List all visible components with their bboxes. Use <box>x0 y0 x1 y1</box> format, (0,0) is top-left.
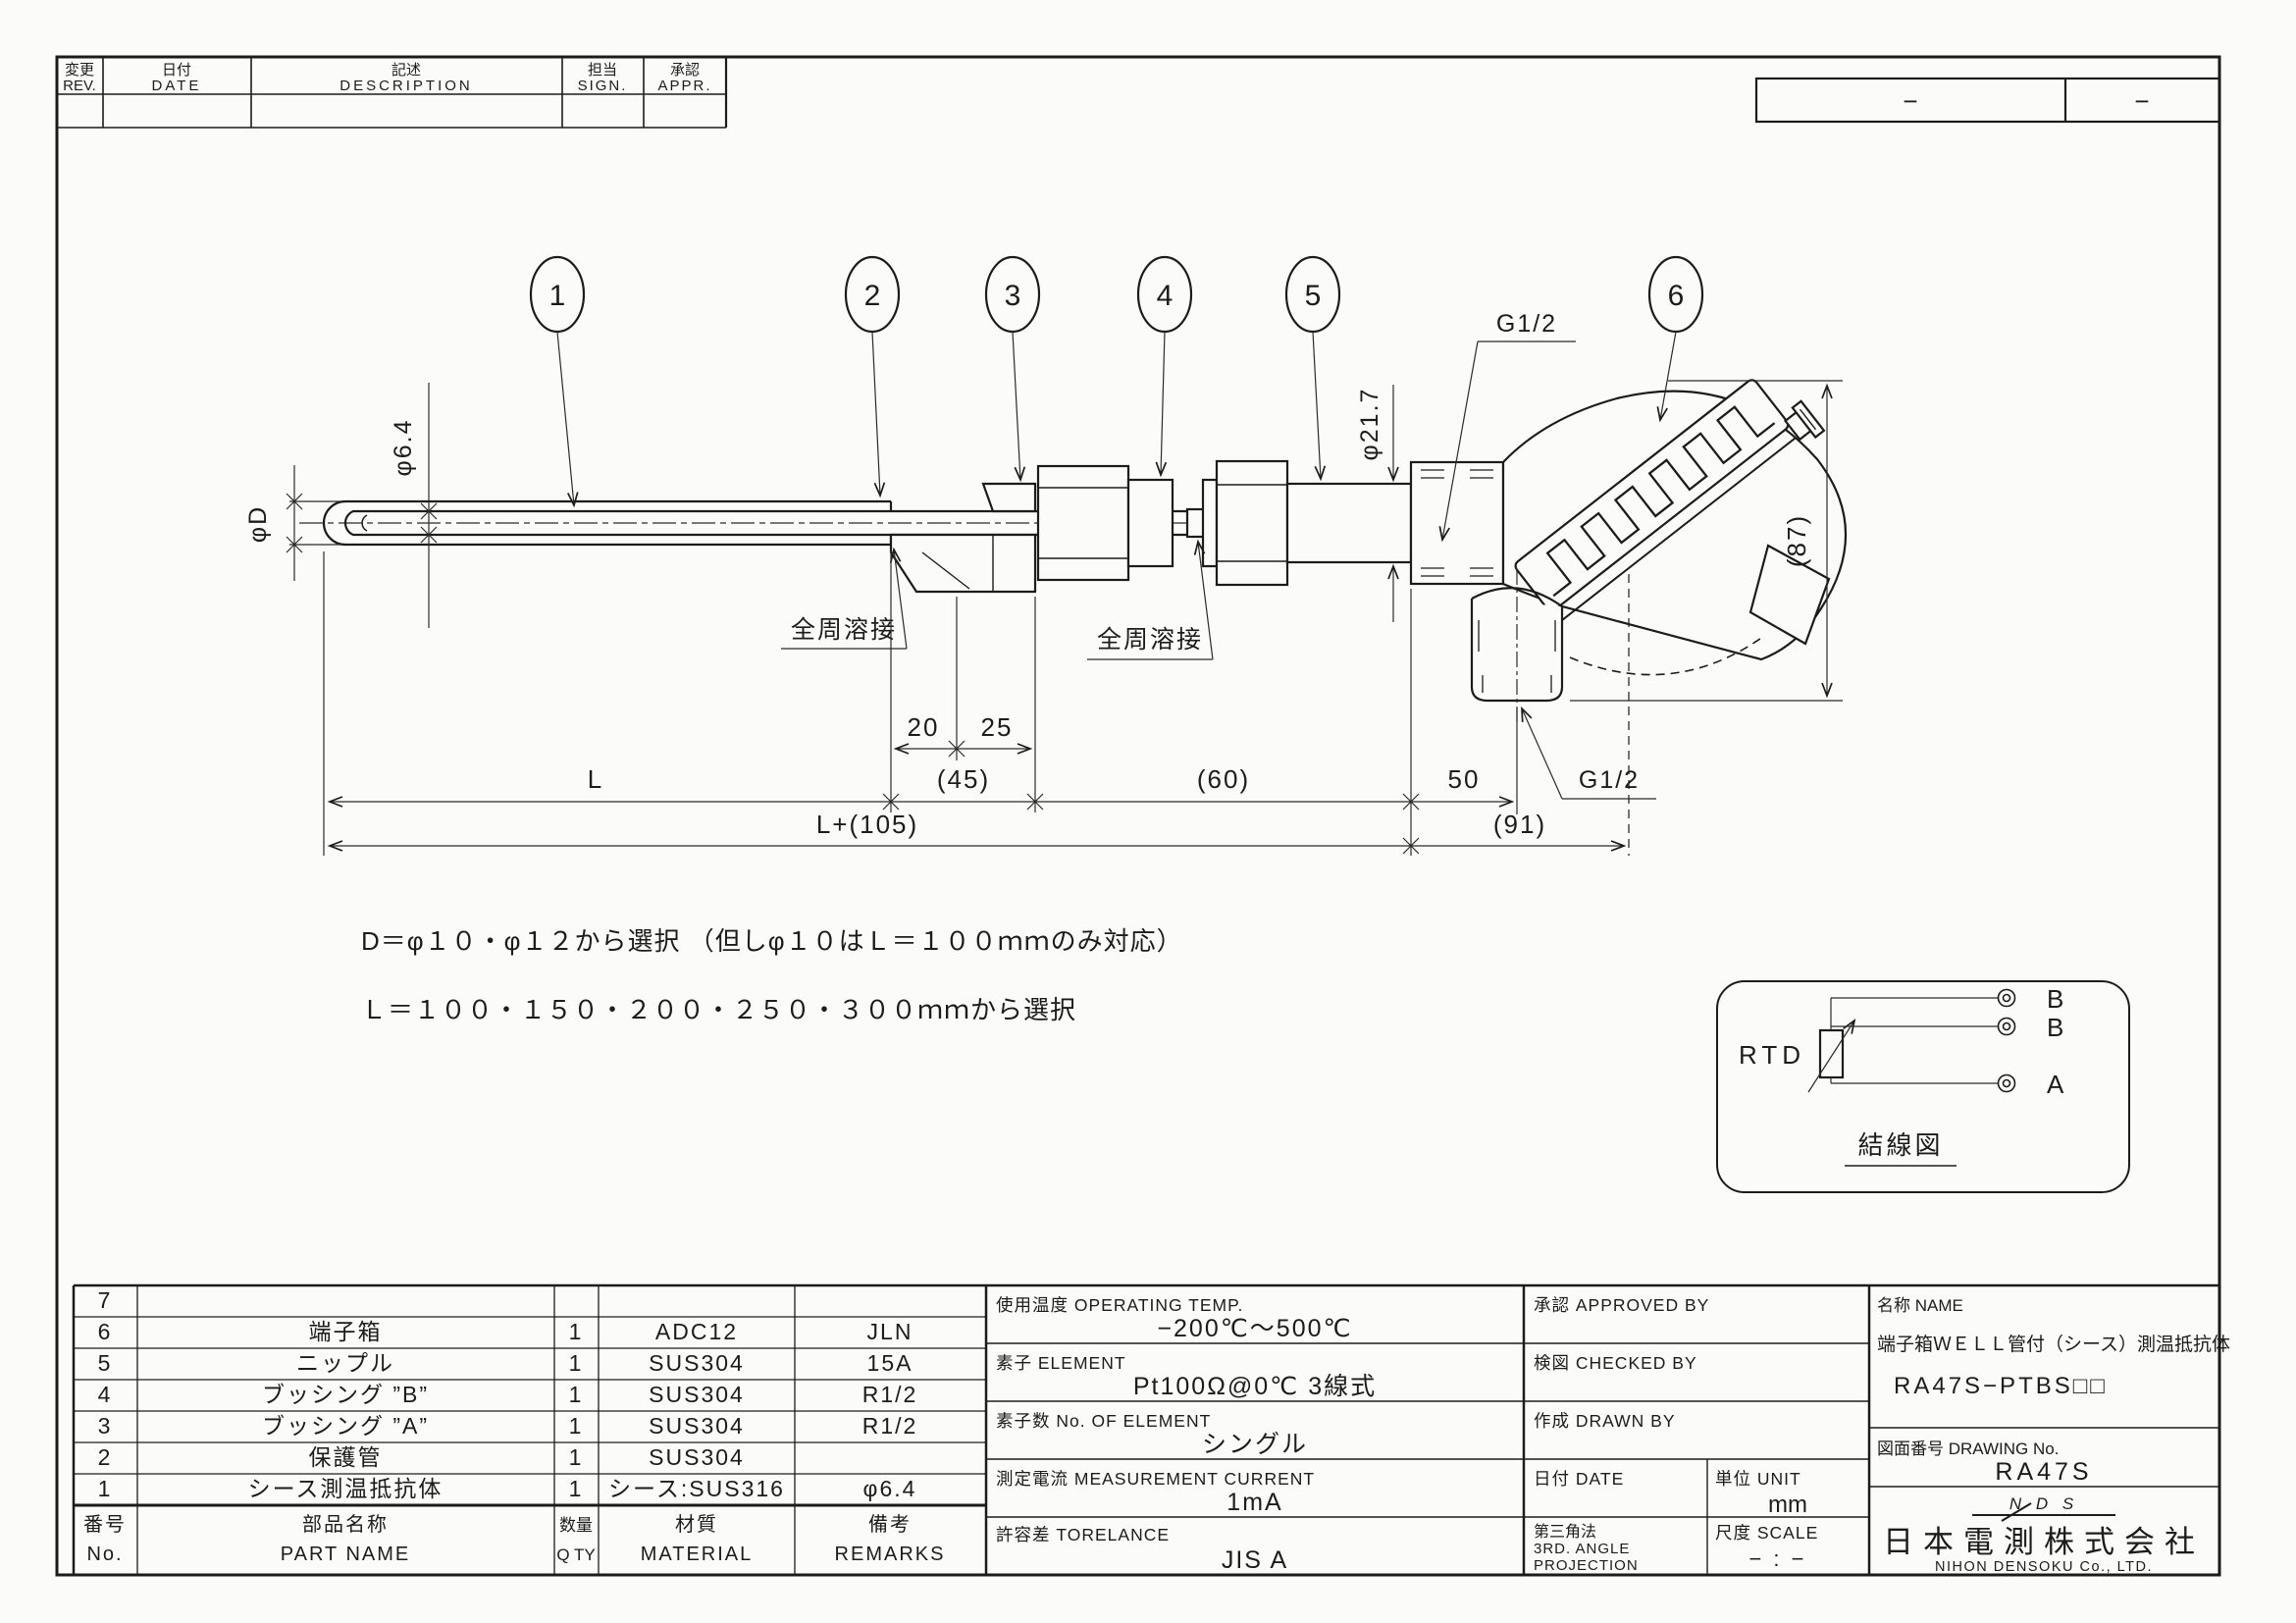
terminal-b2-label: B <box>2047 1013 2063 1042</box>
part-row-material: SUS304 <box>649 1444 745 1470</box>
spec-table: 使用温度 OPERATING TEMP. −200℃～500℃ 素子 ELEME… <box>996 1295 1377 1574</box>
company-name-jp: 日本電測株式会社 <box>1883 1525 2205 1559</box>
part-row-name: 保護管 <box>309 1444 383 1470</box>
spec-value-element: Pt100Ω@0℃ 3線式 <box>1133 1373 1377 1400</box>
scale-label: 尺度 SCALE <box>1715 1523 1818 1543</box>
approved-by-label: 承認 APPROVED BY <box>1534 1295 1709 1315</box>
g12-bottom-label: G1/2 <box>1579 766 1640 794</box>
dim-L: L <box>588 764 603 794</box>
sign-header-jp: 担当 <box>588 62 617 79</box>
drawing-number-value: RA47S <box>1995 1458 2092 1486</box>
terminal-b2-icon <box>1999 1019 2015 1035</box>
terminal-b1-label: B <box>2047 984 2063 1014</box>
dim-45: (45) <box>937 764 990 794</box>
name-label: 名称 NAME <box>1877 1296 1963 1315</box>
balloon-3-number: 3 <box>1005 280 1021 312</box>
parts-header-qty-en: Q TY <box>556 1545 595 1564</box>
g12-top-label: G1/2 <box>1496 310 1557 338</box>
projection-label-en1: 3RD. ANGLE <box>1534 1541 1630 1557</box>
part-row-remarks: R1/2 <box>862 1413 918 1439</box>
part-row-qty: 1 <box>569 1476 584 1501</box>
part-row-no: 2 <box>98 1444 113 1470</box>
description-header-jp: 記述 <box>391 62 421 79</box>
rtd-resistor-symbol <box>1820 1030 1843 1077</box>
company-name-en: NIHON DENSOKU Co., LTD. <box>1935 1559 2153 1575</box>
rev-header-jp: 変更 <box>65 62 94 79</box>
projection-label-jp: 第三角法 <box>1534 1523 1596 1541</box>
terminal-head <box>1472 363 1846 856</box>
bushing-b <box>1038 466 1173 580</box>
terminal-a-label: A <box>2047 1070 2064 1099</box>
nipple-hex <box>1203 461 1287 585</box>
spec-label-tolerance: 許容差 TORELANCE <box>996 1525 1170 1544</box>
spec-value-operating-temp: −200℃～500℃ <box>1157 1315 1352 1342</box>
technical-drawing-canvas: 変更 REV. 日付 DATE 記述 DESCRIPTION 担当 SIGN. … <box>0 0 2296 1623</box>
terminal-a-icon <box>1999 1075 2015 1092</box>
weld-label-left: 全周溶接 <box>791 616 897 644</box>
phi-217-label: φ21.7 <box>1356 388 1383 461</box>
drawing-number-label: 図面番号 DRAWING No. <box>1877 1440 2059 1458</box>
phi-64-label: φ6.4 <box>390 419 417 477</box>
dim-87: (87) <box>1782 514 1811 567</box>
sign-header-en: SIGN. <box>578 78 628 94</box>
part-row-no: 4 <box>98 1382 113 1407</box>
parts-header-material-en: MATERIAL <box>641 1544 754 1565</box>
date-header-en: DATE <box>152 78 202 94</box>
part-row-remarks: 15A <box>867 1350 913 1376</box>
spec-label-measurement-current: 測定電流 MEASUREMENT CURRENT <box>996 1469 1315 1489</box>
part-row-qty: 1 <box>569 1382 584 1407</box>
wiring-diagram: RTD B B A 結線図 <box>1717 981 2129 1192</box>
spec-value-measurement-current: 1mA <box>1226 1489 1282 1516</box>
date-header-jp: 日付 <box>162 62 191 79</box>
part-row-name: ニップル <box>296 1350 394 1376</box>
part-row-qty: 1 <box>569 1319 584 1344</box>
revision-table: 変更 REV. 日付 DATE 記述 DESCRIPTION 担当 SIGN. … <box>57 57 726 128</box>
part-row-remarks: R1/2 <box>862 1382 918 1407</box>
description-header-en: DESCRIPTION <box>339 78 473 94</box>
dim-25: 25 <box>981 712 1014 742</box>
part-row-remarks: JLN <box>867 1319 913 1344</box>
part-row-name: ブッシング ”A” <box>262 1413 429 1439</box>
title-block: 名称 NAME 端子箱ＷＥＬＬ管付（シース）測温抵抗体 RA47S−PTBS□□… <box>1877 1296 2230 1575</box>
terminal-b1-icon <box>1999 990 2015 1007</box>
dim-L105: L+(105) <box>816 810 918 839</box>
projection-label-en2: PROJECTION <box>1534 1557 1639 1574</box>
weld-label-right: 全周溶接 <box>1097 626 1203 654</box>
part-row-qty: 1 <box>569 1444 584 1470</box>
parts-header-name-jp: 部品名称 <box>302 1513 389 1536</box>
nipple-pipe <box>1287 484 1411 562</box>
parts-header-remarks-en: REMARKS <box>835 1544 946 1565</box>
appr-header-en: APPR. <box>657 78 711 94</box>
parts-table: 7 6 端子箱 1 ADC12 JLN 5 ニップル 1 SUS304 15A … <box>83 1287 945 1565</box>
balloon-6-number: 6 <box>1668 280 1685 312</box>
part-row-name: 端子箱 <box>309 1319 383 1344</box>
model-number: RA47S−PTBS□□ <box>1894 1373 2108 1399</box>
part-row-material: ADC12 <box>655 1319 738 1344</box>
corner-box-left-value: − <box>1903 86 1917 116</box>
unit-value: mm <box>1768 1492 1807 1518</box>
part-row-no: 6 <box>98 1319 113 1344</box>
balloon-1-number: 1 <box>549 280 566 312</box>
note-diameter-selection: D＝φ１０・φ１２から選択 （但しφ１０はＬ＝１００ｍｍのみ対応） <box>361 926 1183 956</box>
balloon-2-number: 2 <box>864 280 881 312</box>
selection-notes: D＝φ１０・φ１２から選択 （但しφ１０はＬ＝１００ｍｍのみ対応） Ｌ＝１００・… <box>361 926 1183 1024</box>
parts-header-remarks-jp: 備考 <box>868 1513 912 1536</box>
part-row-qty: 1 <box>569 1413 584 1439</box>
spec-value-no-of-element: シングル <box>1202 1431 1308 1458</box>
balloon-4-number: 4 <box>1157 280 1174 312</box>
signature-table: 承認 APPROVED BY 検図 CHECKED BY 作成 DRAWN BY… <box>1534 1295 1818 1574</box>
part-row-no: 7 <box>98 1287 113 1313</box>
spec-label-no-of-element: 素子数 No. OF ELEMENT <box>996 1411 1211 1431</box>
corner-box-right-value: − <box>2134 86 2149 116</box>
part-row-qty: 1 <box>569 1350 584 1376</box>
part-row-no: 3 <box>98 1413 113 1439</box>
phi-d-label: φD <box>244 505 272 543</box>
part-row-material: SUS304 <box>649 1413 745 1439</box>
drawn-by-label: 作成 DRAWN BY <box>1534 1411 1676 1431</box>
rtd-label: RTD <box>1739 1040 1805 1070</box>
scale-value: − : − <box>1748 1546 1806 1571</box>
part-row-material: SUS304 <box>649 1382 745 1407</box>
part-row-material: シース:SUS316 <box>608 1476 785 1501</box>
rev-header-en: REV. <box>63 78 96 94</box>
dim-91: (91) <box>1493 810 1546 839</box>
note-length-selection: Ｌ＝１００・１５０・２００・２５０・３００ｍｍから選択 <box>361 995 1076 1024</box>
spec-value-tolerance: JIS A <box>1222 1546 1288 1574</box>
spec-label-operating-temp: 使用温度 OPERATING TEMP. <box>996 1295 1243 1315</box>
checked-by-label: 検図 CHECKED BY <box>1534 1353 1697 1373</box>
part-row-remarks: φ6.4 <box>863 1476 917 1501</box>
part-row-material: SUS304 <box>649 1350 745 1376</box>
wiring-caption: 結線図 <box>1857 1130 1943 1160</box>
head-inlet-collar <box>1411 462 1503 584</box>
drawing-sheet: 変更 REV. 日付 DATE 記述 DESCRIPTION 担当 SIGN. … <box>0 0 2296 1623</box>
appr-header-jp: 承認 <box>670 62 700 79</box>
dim-50: 50 <box>1448 764 1481 794</box>
part-row-name: シース測温抵抗体 <box>248 1476 444 1501</box>
nds-logo: N D S <box>1972 1494 2115 1521</box>
product-name: 端子箱ＷＥＬＬ管付（シース）測温抵抗体 <box>1877 1334 2230 1355</box>
part-row-no: 5 <box>98 1350 113 1376</box>
part-row-no: 1 <box>98 1476 113 1501</box>
balloon-5-number: 5 <box>1305 280 1322 312</box>
parts-header-no-en: No. <box>86 1544 123 1565</box>
bushing-a <box>891 484 1035 592</box>
corner-box: − − <box>1756 79 2219 122</box>
parts-header-material-jp: 材質 <box>675 1513 718 1536</box>
parts-header-qty-jp: 数量 <box>559 1516 593 1535</box>
parts-header-name-en: PART NAME <box>281 1544 410 1565</box>
part-row-name: ブッシング ”B” <box>262 1382 429 1407</box>
dim-60: (60) <box>1197 764 1250 794</box>
spec-label-element: 素子 ELEMENT <box>996 1353 1126 1373</box>
dim-20: 20 <box>908 712 940 742</box>
date-label: 日付 DATE <box>1534 1469 1624 1489</box>
parts-header-no-jp: 番号 <box>83 1513 127 1536</box>
unit-label: 単位 UNIT <box>1715 1469 1801 1489</box>
